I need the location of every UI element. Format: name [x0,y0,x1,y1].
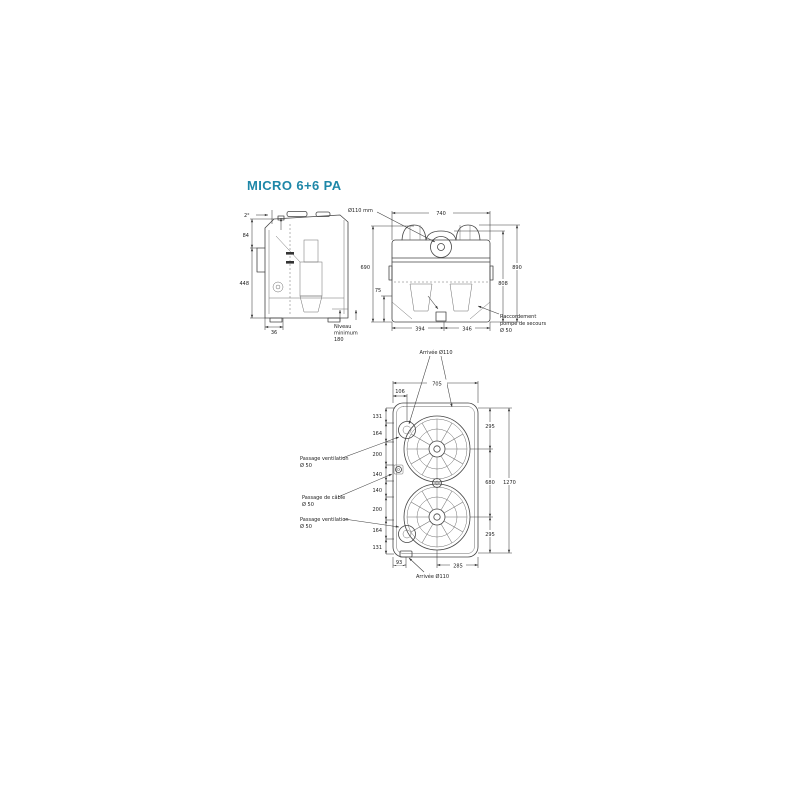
front-height-outer-dim: 890 [512,265,522,271]
chain-dim-7: 164 [372,528,382,534]
chain-dim-1: 131 [372,414,382,420]
niveau-label-line1: Niveau [334,324,351,330]
side-bottom-dim: 36 [271,330,277,336]
inlet-mark-1 [286,252,294,255]
side-height-top-dim: 84 [243,233,249,239]
niveau-label-line2: minimum [334,331,358,337]
front-inlet-label: Ø110 mm [348,207,373,214]
chain-dim-4: 140 [372,472,382,478]
top-width-dim: 705 [432,382,442,388]
right-bottom-dim: 295 [485,532,495,538]
front-width-dim: 740 [436,211,446,217]
top-view: Arrivée Ø110 705 106 131 164 200 140 140… [300,349,519,580]
raccordement-label-line1: Raccordement [500,314,536,320]
bottom-right-dim: 285 [453,564,463,570]
side-height-dim: 448 [239,281,249,287]
chain-dim-8: 131 [372,545,382,551]
vent-top-label-line2: Ø 50 [300,462,312,469]
front-height-inner-dim: 808 [498,281,508,287]
pump-cover-top [404,416,470,482]
arrivee-bottom-label: Arrivée Ø110 [416,573,449,580]
side-view: 2° 84 448 36 Niveau minimum 180 [239,210,357,343]
bottom-left-dim: 93 [396,560,402,566]
inlet-mark-2 [286,261,294,264]
front-view-internals [392,225,490,319]
chain-dim-3: 200 [372,452,382,458]
right-mid-dim: 680 [485,480,495,486]
top-offset-dim: 106 [395,389,405,395]
arrivee-top-label: Arrivée Ø110 [419,349,452,356]
right-top-dim: 295 [485,424,495,430]
front-bottom-right-dim: 346 [462,327,472,333]
vent-top-label-line1: Passage ventilation [300,456,349,462]
pump-cover-bottom [404,484,470,550]
side-slope-dim: 2° [244,213,250,219]
chain-dim-2: 164 [372,431,382,437]
front-bottom-left-dim: 394 [415,327,425,333]
raccordement-label-line3: Ø 50 [500,327,512,334]
top-view-dimension-lines [338,356,512,572]
front-view: Ø110 mm 740 690 75 808 890 394 346 Racco… [348,207,546,334]
raccordement-label-line2: pompe de secours [500,321,546,327]
right-total-dim: 1270 [503,480,516,486]
chain-dim-6: 200 [372,507,382,513]
vent-bottom-label-line1: Passage ventilation [300,517,349,523]
front-height-left-dim: 690 [360,265,370,271]
front-outlet-dim: 75 [375,288,381,294]
side-view-dimension-lines [250,210,356,330]
vent-bottom-label-line2: Ø 50 [300,523,312,530]
front-view-dimension-lines [371,211,520,331]
side-view-internals [269,220,348,314]
cable-label-line1: Passage de câble [302,494,345,501]
technical-drawing: 2° 84 448 36 Niveau minimum 180 [0,0,800,800]
chain-dim-5: 140 [372,488,382,494]
front-view-outline [389,225,493,322]
inlet-leader [377,212,435,242]
niveau-label-line3: 180 [334,337,344,343]
cable-label-line2: Ø 50 [302,501,314,508]
